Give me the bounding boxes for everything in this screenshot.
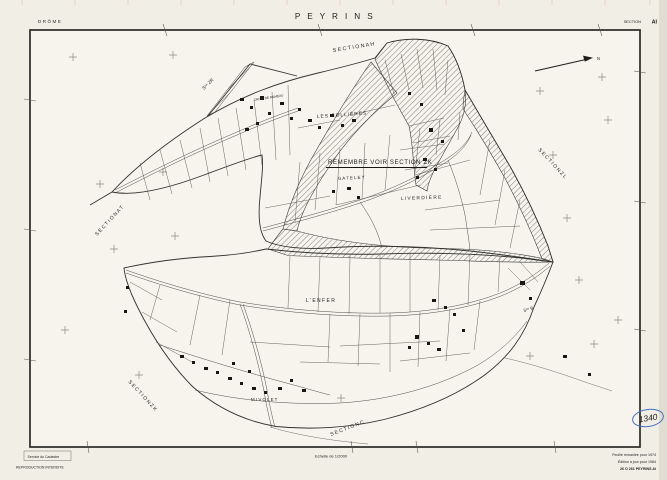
sheet-section-word: SECTION	[624, 19, 641, 24]
edition-line-1: Feuille remaniée pour 1974	[612, 453, 656, 457]
map-frame	[30, 30, 640, 447]
sheet-section-code: AI	[652, 20, 658, 26]
north-arrow-label: N	[597, 56, 600, 61]
paper-edge-shadow	[659, 0, 667, 480]
place-mivolet: M I V O L E T	[251, 397, 278, 402]
commune-title: P E Y R I N S	[295, 12, 375, 21]
edition-line-3: 26 O 261 PEYRINS AI	[620, 467, 656, 471]
cadastral-map-sheet: DRÔME P E Y R I N S SECTION AI	[0, 0, 667, 480]
issuer-label: Service du Cadastre	[28, 455, 60, 459]
map-canvas: DRÔME P E Y R I N S SECTION AI	[0, 0, 667, 480]
annotation-text: REMEMBRE VOIR SECTION ZK	[328, 159, 432, 166]
edition-line-2: Édition à jour pour 1984	[618, 459, 656, 464]
place-l-enfer: L ' E N F E R	[306, 298, 335, 304]
scale-label: Echelle de 1/2000	[315, 454, 348, 459]
copyright-label: REPRODUCTION INTERDITE	[16, 466, 65, 470]
department-label: DRÔME	[38, 19, 62, 24]
